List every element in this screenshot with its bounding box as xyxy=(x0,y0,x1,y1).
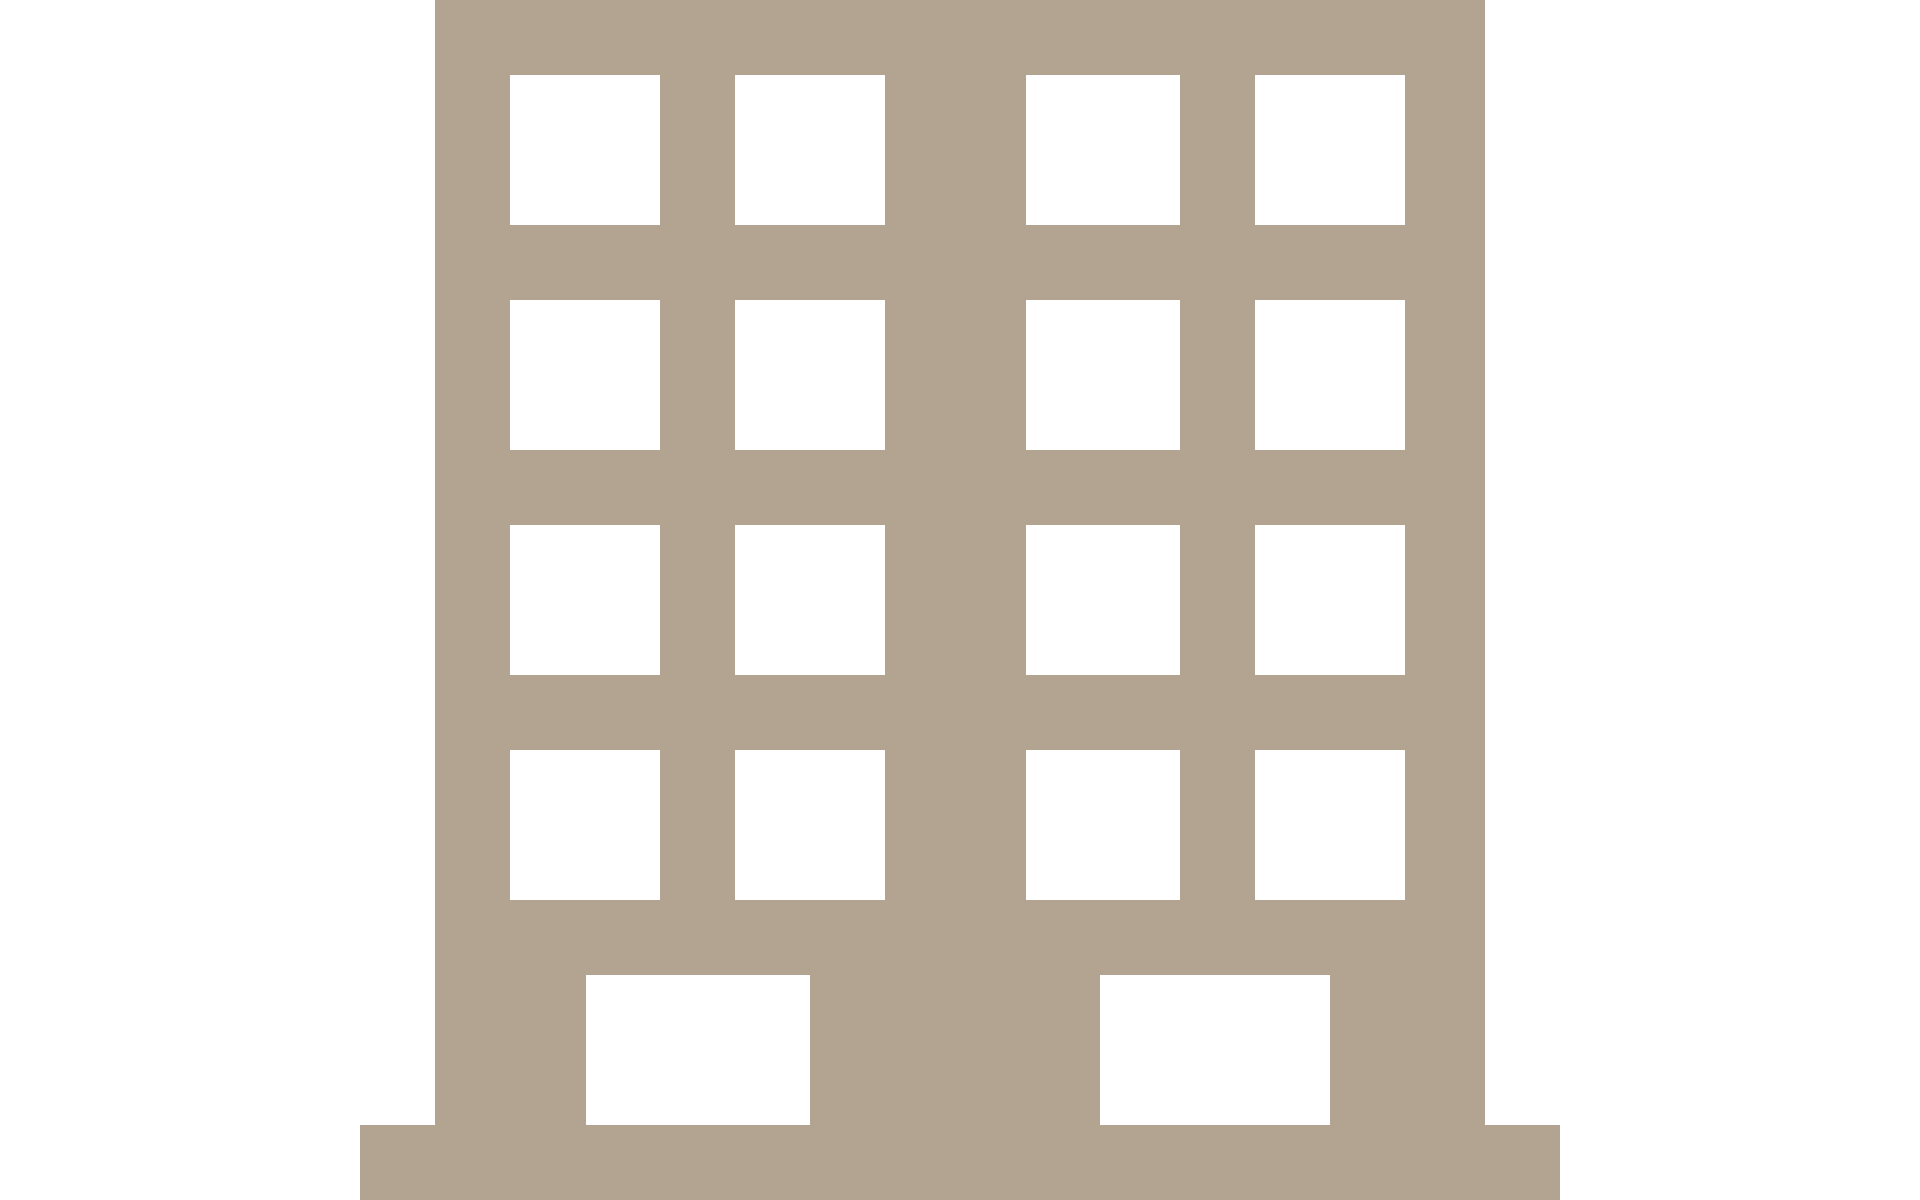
building-door xyxy=(1100,975,1330,1125)
building-window xyxy=(510,750,660,900)
building-window xyxy=(1255,300,1405,450)
building-window xyxy=(735,750,885,900)
building-window xyxy=(735,300,885,450)
building-window xyxy=(735,75,885,225)
building-window xyxy=(1255,525,1405,675)
building-window xyxy=(1255,750,1405,900)
building-window xyxy=(510,300,660,450)
building-base xyxy=(360,1125,1560,1200)
building-window xyxy=(510,525,660,675)
canvas xyxy=(0,0,1920,1200)
building-window xyxy=(1026,750,1180,900)
building-window xyxy=(1255,75,1405,225)
building-window xyxy=(1026,75,1180,225)
building-door xyxy=(586,975,810,1125)
building-window xyxy=(1026,300,1180,450)
building-window xyxy=(1026,525,1180,675)
building-window xyxy=(735,525,885,675)
building-window xyxy=(510,75,660,225)
